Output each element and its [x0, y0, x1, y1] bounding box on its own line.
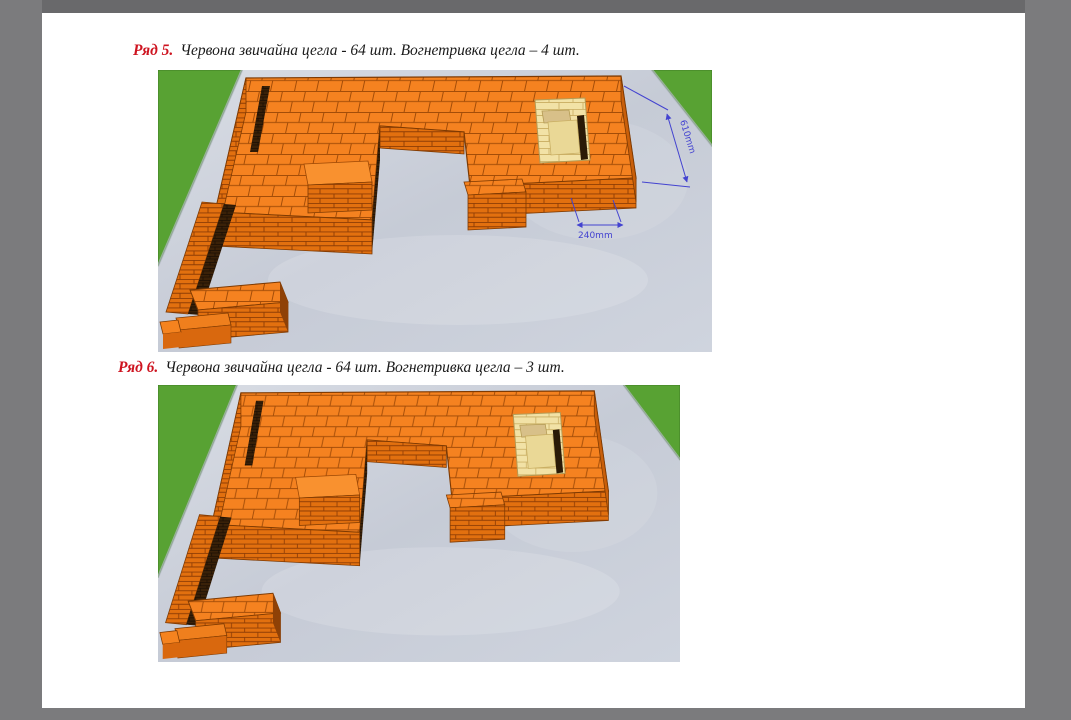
- document-page: Ряд 5.Червона звичайна цегла - 64 шт. Во…: [42, 13, 1025, 708]
- row6-heading: Ряд 6.Червона звичайна цегла - 64 шт. Во…: [118, 359, 565, 377]
- row5-brick-render: 610mm 240mm: [158, 70, 712, 352]
- brick-structure: [158, 70, 712, 352]
- row6-label: Ряд 6.: [118, 359, 158, 376]
- row5-label: Ряд 5.: [133, 42, 173, 59]
- row5-heading: Ряд 5.Червона звичайна цегла - 64 шт. Во…: [133, 42, 580, 60]
- row6-description: Червона звичайна цегла - 64 шт. Вогнетри…: [165, 359, 565, 376]
- dim-label-240mm: 240mm: [578, 231, 613, 241]
- row5-description: Червона звичайна цегла - 64 шт. Вогнетри…: [180, 42, 580, 59]
- window-top-edge: [42, 0, 1025, 13]
- row6-figure: [158, 385, 680, 662]
- brick-structure: [158, 385, 680, 662]
- row6-brick-render: [158, 385, 680, 662]
- row5-figure: 610mm 240mm: [158, 70, 712, 352]
